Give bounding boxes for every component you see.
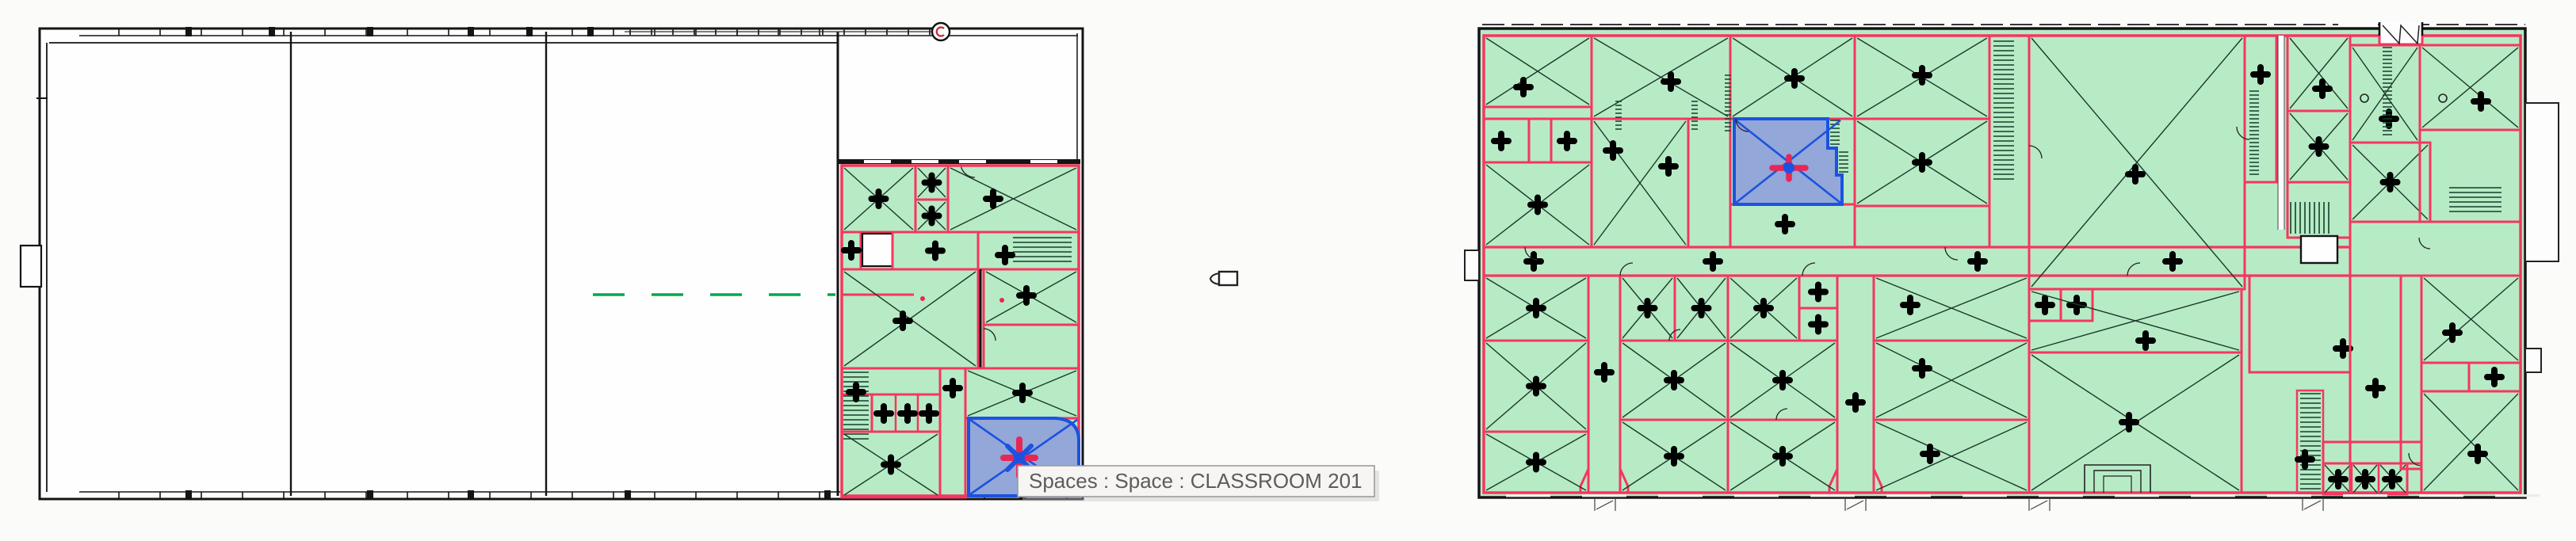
- svg-text:Spaces : Space : CLASSROOM 201: Spaces : Space : CLASSROOM 201: [1029, 469, 1363, 493]
